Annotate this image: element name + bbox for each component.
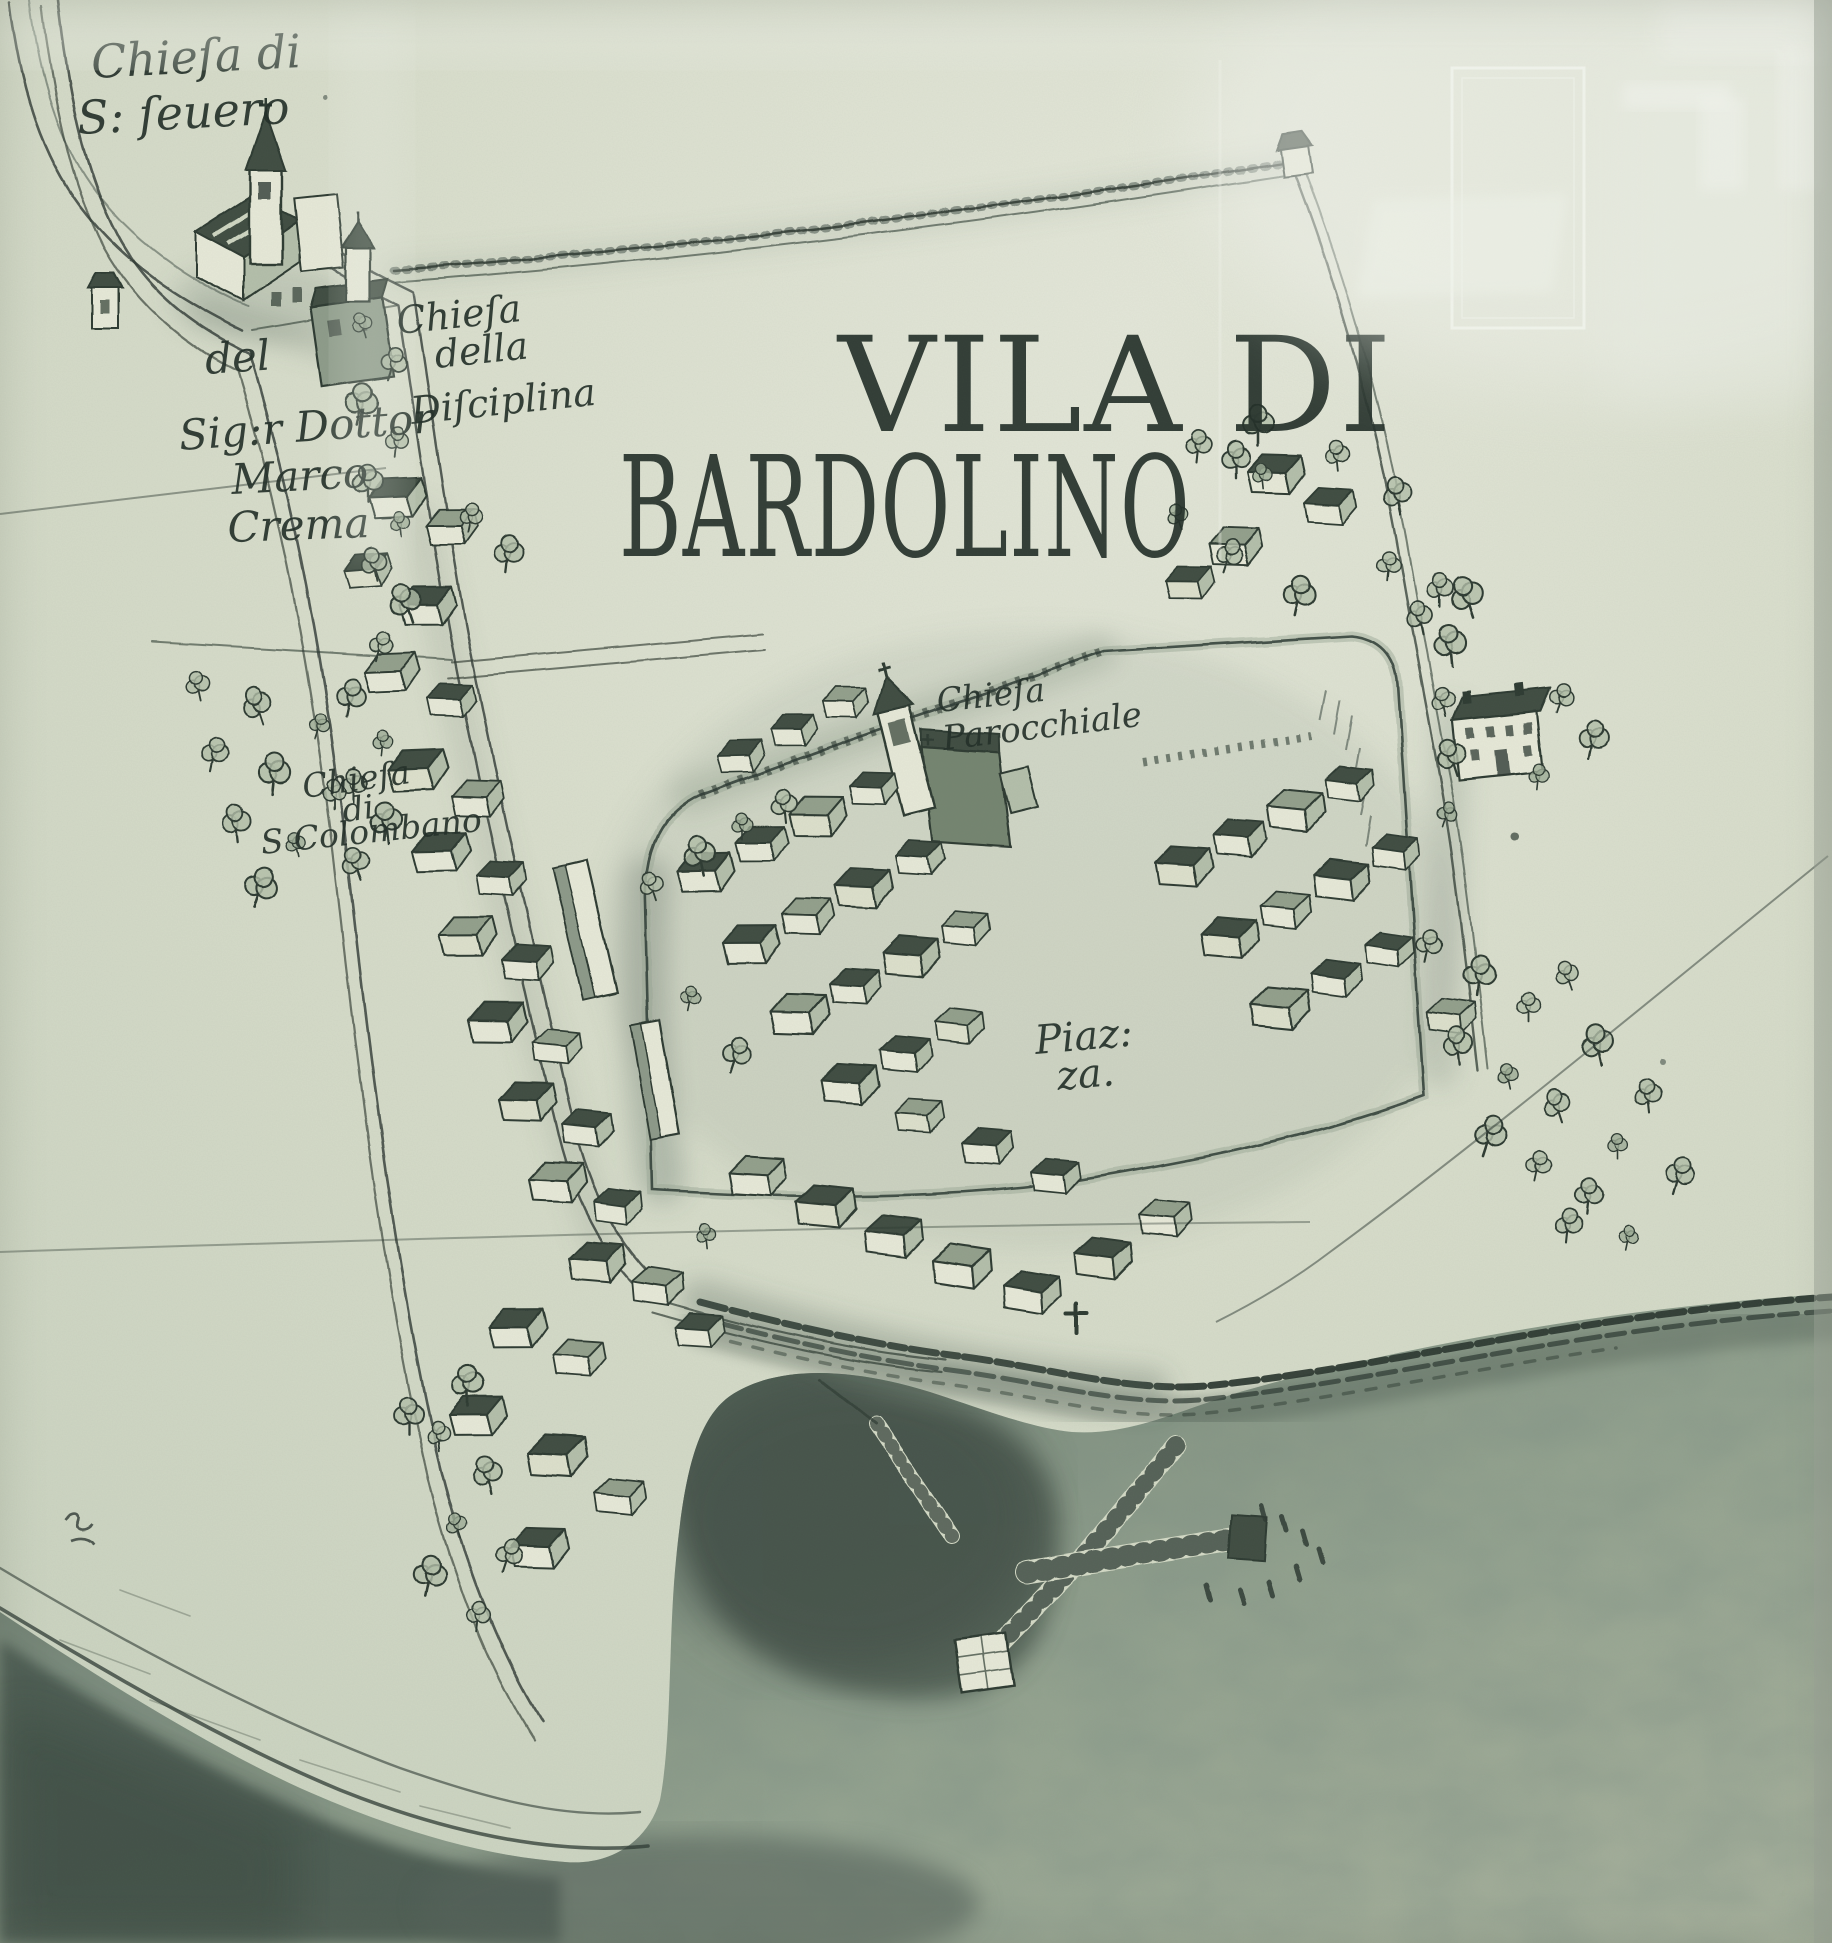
framed-map-photo: Chieſa di S: ſeuero del Sig:r Dottor Mar… [0,0,1832,1943]
frame-edge-strip [1814,0,1832,1943]
map-canvas: Chieſa di S: ſeuero del Sig:r Dottor Mar… [0,0,1832,1943]
